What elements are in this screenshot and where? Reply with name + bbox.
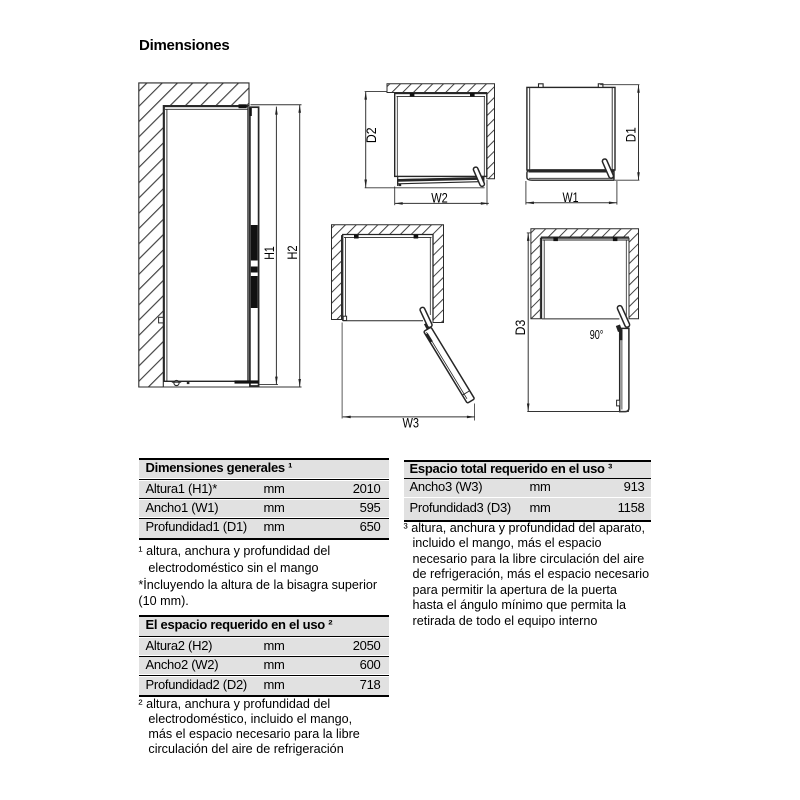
svg-text:D3: D3 xyxy=(513,320,528,336)
svg-text:D1: D1 xyxy=(624,127,639,142)
svg-text:W3: W3 xyxy=(403,415,420,430)
svg-text:H2: H2 xyxy=(285,245,300,259)
svg-text:W1: W1 xyxy=(563,190,579,205)
svg-text:D2: D2 xyxy=(364,127,379,143)
svg-text:90°: 90° xyxy=(590,327,604,342)
svg-text:W2: W2 xyxy=(431,190,448,205)
svg-text:H1: H1 xyxy=(262,246,277,260)
